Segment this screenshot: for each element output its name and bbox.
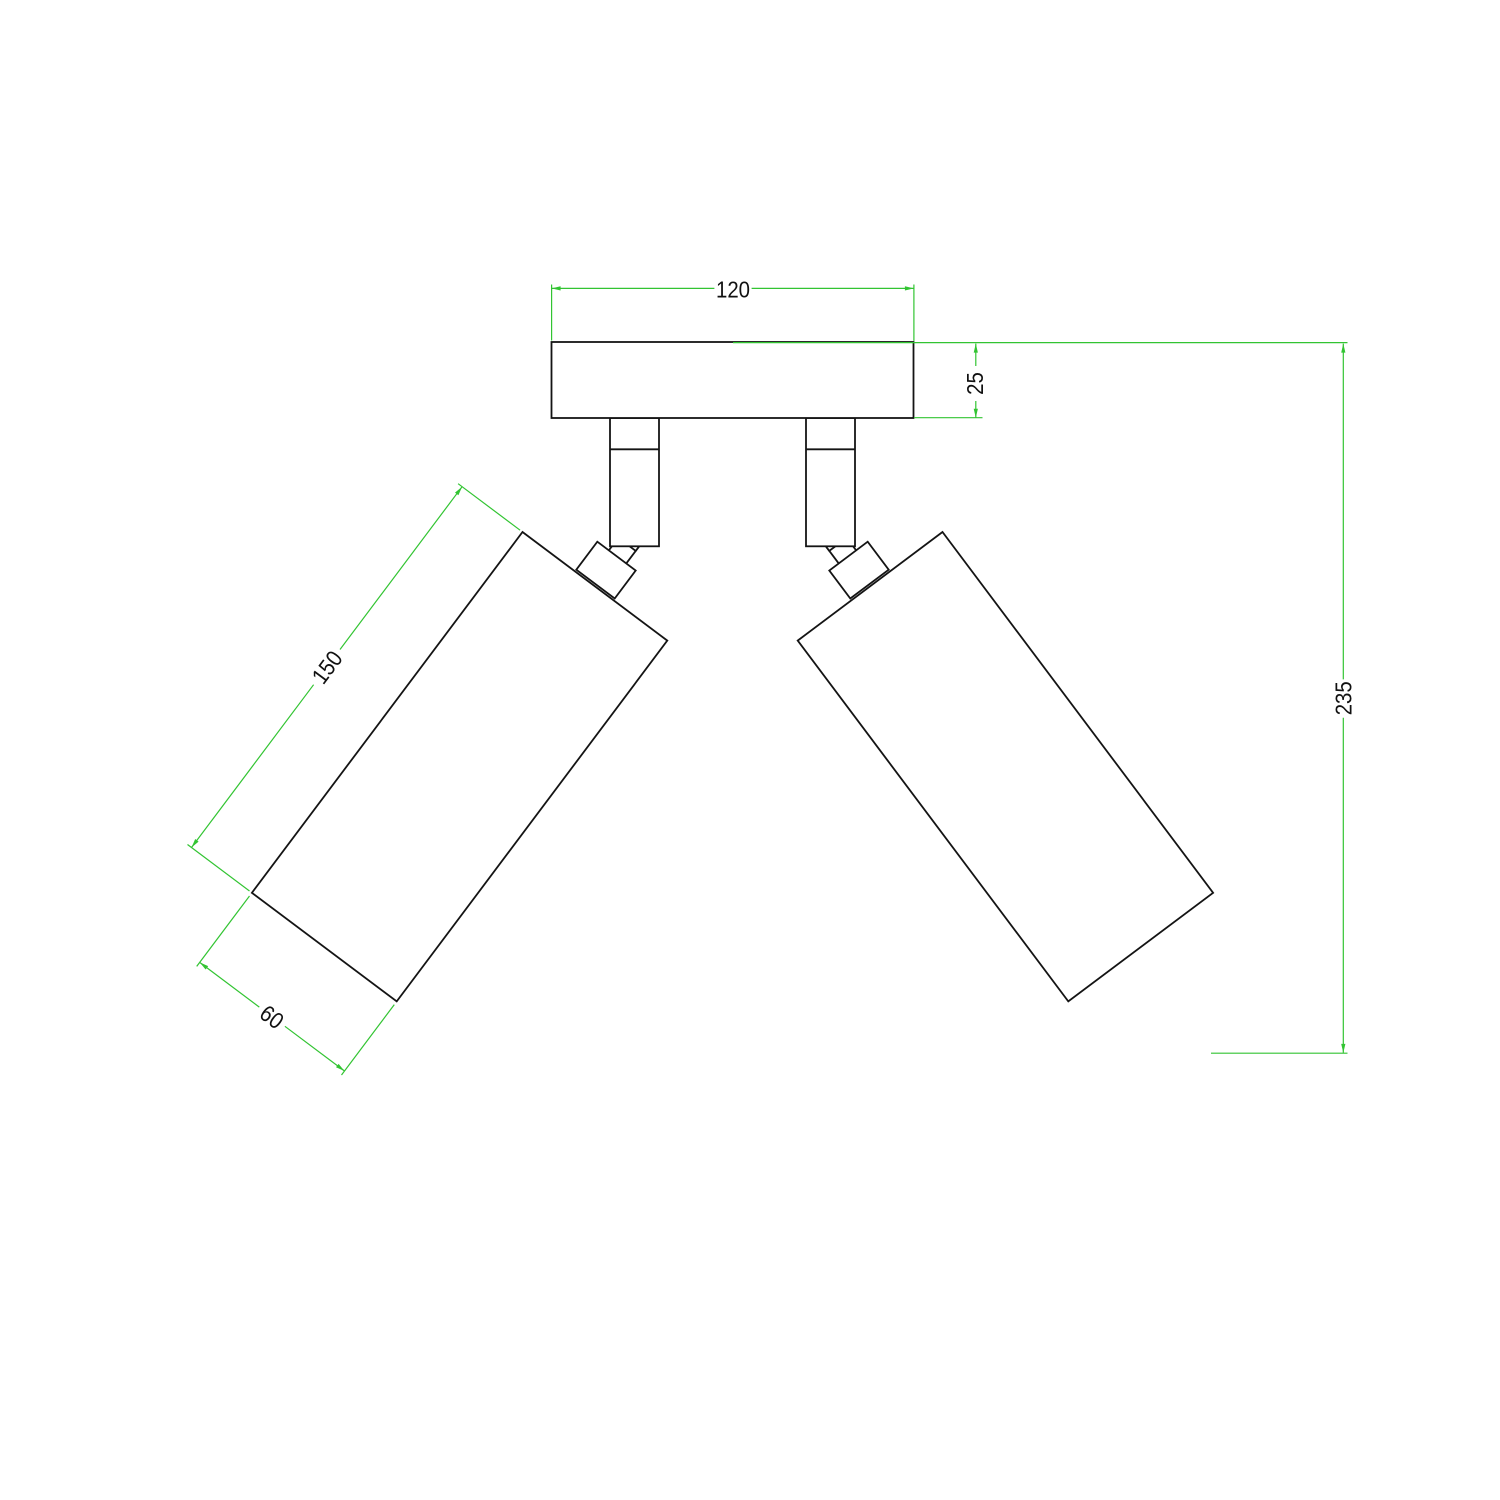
svg-text:120: 120 xyxy=(716,276,750,302)
svg-text:25: 25 xyxy=(962,372,988,395)
svg-text:235: 235 xyxy=(1330,681,1356,715)
